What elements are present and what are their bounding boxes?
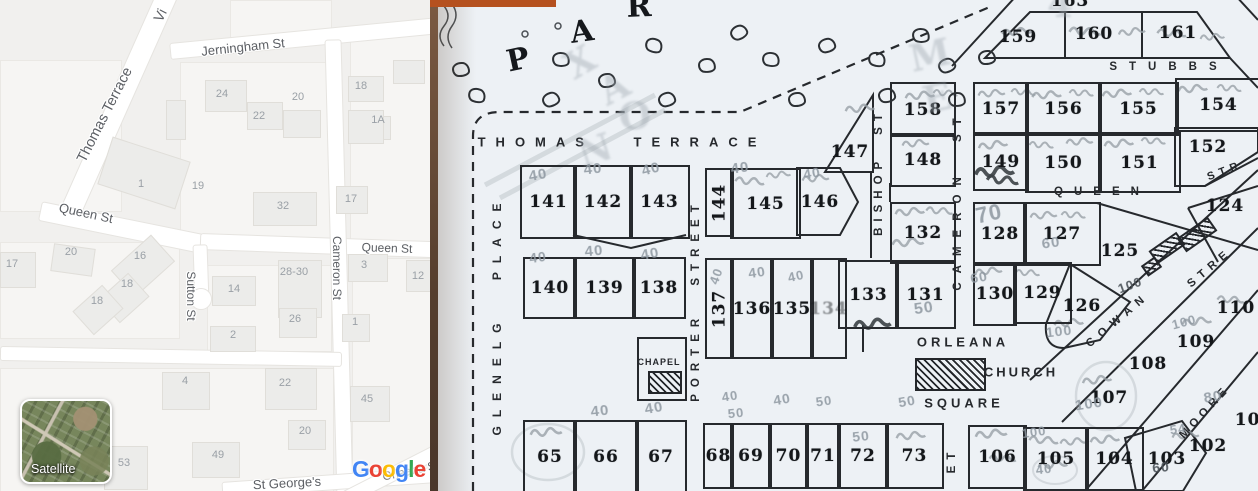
lot-number-108: 108 bbox=[1129, 354, 1168, 374]
lot-145: 145 bbox=[730, 168, 801, 239]
lot-number: 140 bbox=[531, 278, 570, 298]
pencil-annotation: 40 bbox=[643, 398, 664, 418]
scan-edge-strip bbox=[430, 0, 438, 491]
lot-number: 138 bbox=[640, 278, 679, 298]
lot-number: 154 bbox=[1199, 95, 1238, 115]
lot-number: 129 bbox=[1023, 283, 1062, 303]
lot-number: 150 bbox=[1044, 153, 1083, 173]
pencil-annotation: 80 bbox=[1202, 387, 1223, 407]
pencil-annotation: 70 bbox=[973, 199, 1004, 230]
house-number: 45 bbox=[361, 393, 373, 405]
lot-number: 142 bbox=[584, 192, 623, 212]
lot-66: 66 bbox=[573, 420, 639, 491]
park-letter: R bbox=[626, 0, 652, 25]
lot-156: 156 bbox=[1025, 82, 1102, 136]
lot-133: 133 bbox=[838, 260, 899, 329]
house-number: 1 bbox=[138, 178, 144, 190]
tree-icon bbox=[452, 62, 470, 77]
house-number: 18 bbox=[91, 295, 103, 307]
building-footprint bbox=[283, 110, 321, 138]
lot-number: 69 bbox=[738, 446, 764, 466]
lot-number: 73 bbox=[902, 446, 928, 466]
street-label: Cameron St bbox=[330, 236, 344, 300]
pencil-annotation: 40 bbox=[527, 165, 548, 185]
house-number: 26 bbox=[289, 313, 301, 325]
building-footprint bbox=[166, 100, 186, 140]
house-number: 1 bbox=[352, 316, 358, 328]
house-number: 14 bbox=[228, 283, 240, 295]
lot-number: 137 bbox=[710, 289, 730, 328]
house-number: 20 bbox=[292, 91, 304, 103]
google-logo-letter: G bbox=[352, 456, 369, 482]
lot-151: 151 bbox=[1098, 132, 1181, 193]
house-number: 49 bbox=[212, 449, 224, 461]
google-logo-letter: o bbox=[369, 456, 382, 482]
house-number: 17 bbox=[345, 193, 357, 205]
lot-number: 106 bbox=[978, 447, 1017, 467]
pencil-annotation: 60 bbox=[1151, 458, 1170, 476]
pencil-annotation: 40 bbox=[747, 263, 767, 281]
lot-number: 67 bbox=[648, 447, 674, 467]
lot-number: 130 bbox=[976, 284, 1015, 304]
house-number: 1A bbox=[371, 114, 384, 126]
lot-number-147: 147 bbox=[831, 142, 870, 162]
lot-number: 151 bbox=[1120, 153, 1159, 173]
lot-67: 67 bbox=[635, 420, 687, 491]
building-footprint bbox=[393, 60, 425, 84]
pencil-annotation: 60 bbox=[1041, 233, 1062, 252]
screenshot-root: 242220181A119321717201618181428-30312226… bbox=[0, 0, 1258, 491]
google-logo-letter: e bbox=[413, 456, 425, 482]
lot-number: 72 bbox=[850, 446, 876, 466]
hatched-building bbox=[648, 371, 682, 394]
lot-127: 127 bbox=[1023, 202, 1101, 266]
lot-number-152: 152 bbox=[1189, 137, 1228, 157]
pencil-annotation: 54 bbox=[1169, 420, 1187, 437]
pencil-annotation: 40 bbox=[772, 390, 792, 409]
lot-number: 132 bbox=[904, 223, 943, 243]
lot-number: 145 bbox=[746, 194, 785, 214]
lot-106: 106 bbox=[968, 425, 1027, 489]
house-number: 53 bbox=[118, 457, 130, 469]
lot-number-160: 160 bbox=[1075, 24, 1114, 44]
lot-number: 143 bbox=[640, 192, 679, 212]
house-number: 18 bbox=[121, 278, 133, 290]
pencil-annotation: 40 bbox=[730, 158, 751, 177]
lot-number: 68 bbox=[706, 446, 732, 466]
house-number: 19 bbox=[192, 180, 204, 192]
house-number: 22 bbox=[253, 110, 265, 122]
google-logo-letter: o bbox=[382, 456, 395, 482]
lot-138: 138 bbox=[632, 257, 686, 319]
lot-149: 149 bbox=[973, 132, 1029, 191]
plat-street-label: QUEEN bbox=[1054, 186, 1150, 198]
stamp-letter: O bbox=[617, 92, 654, 139]
house-number: 2 bbox=[230, 329, 236, 341]
satellite-toggle-label: Satellite bbox=[31, 462, 75, 476]
pencil-annotation: 50 bbox=[851, 427, 870, 445]
lot-number-102: 102 bbox=[1189, 436, 1228, 456]
plat-street-label: STUBBS bbox=[1109, 61, 1228, 73]
lot-71: 71 bbox=[805, 423, 841, 489]
house-number: 22 bbox=[279, 377, 291, 389]
lot-number: 155 bbox=[1119, 99, 1158, 119]
lot-number-146: 146 bbox=[801, 192, 840, 212]
lot-150: 150 bbox=[1025, 132, 1102, 193]
scan-orange-bar bbox=[430, 0, 556, 7]
plat-street-label: GLENELG PLACE bbox=[490, 194, 504, 435]
plat-street-label: BISHOP ST bbox=[873, 108, 885, 236]
pencil-annotation: 40 bbox=[1035, 461, 1053, 478]
house-number: 18 bbox=[355, 80, 367, 92]
building-footprint bbox=[348, 254, 388, 282]
lot-104: 104 bbox=[1085, 427, 1144, 491]
lot-73: 73 bbox=[885, 423, 944, 489]
hatched-building bbox=[915, 358, 986, 391]
lot-number: 134 bbox=[809, 299, 848, 319]
house-number: 4 bbox=[182, 375, 188, 387]
lot-number-159: 159 bbox=[999, 27, 1038, 47]
lot-number: 135 bbox=[773, 299, 812, 319]
house-number: 24 bbox=[216, 88, 228, 100]
google-logo-letter: g bbox=[395, 456, 408, 482]
lot-number: 70 bbox=[776, 446, 802, 466]
lot-65: 65 bbox=[523, 420, 577, 491]
lot-number: 156 bbox=[1044, 99, 1083, 119]
historic-plat-scan[interactable]: 1411421431441451581481571561551541491501… bbox=[430, 0, 1258, 491]
lot-number: 157 bbox=[982, 99, 1021, 119]
lot-number: 149 bbox=[982, 152, 1021, 172]
stamp-letter: M bbox=[905, 29, 954, 81]
pencil-annotation: 40 bbox=[584, 242, 604, 261]
plat-street-label: ET bbox=[946, 447, 958, 474]
lot-number-124: 124 bbox=[1206, 196, 1245, 216]
lot-70: 70 bbox=[768, 423, 809, 489]
house-number: 3 bbox=[361, 259, 367, 271]
lot-143: 143 bbox=[629, 165, 690, 239]
lot-131: 131 bbox=[895, 260, 956, 329]
satellite-toggle-button[interactable]: Satellite bbox=[20, 399, 112, 484]
plat-street-label: SQUARE bbox=[924, 396, 1004, 411]
lot-number: 148 bbox=[904, 150, 943, 170]
lot-134: 134 bbox=[810, 258, 847, 359]
lot-number: 141 bbox=[529, 192, 568, 212]
plat-street-label: ORLEANA bbox=[917, 335, 1009, 350]
lot-number-161: 161 bbox=[1159, 23, 1198, 43]
lot-155: 155 bbox=[1098, 82, 1179, 136]
lot-number-109: 109 bbox=[1177, 332, 1216, 352]
lot-number: 104 bbox=[1095, 449, 1134, 469]
lot-number-101: 101 bbox=[1235, 410, 1258, 430]
pencil-annotation: 40 bbox=[590, 402, 610, 421]
lot-number-125: 125 bbox=[1101, 241, 1140, 261]
pencil-annotation: 60 bbox=[969, 268, 989, 287]
house-number: 20 bbox=[299, 425, 311, 437]
pencil-annotation: 50 bbox=[727, 405, 745, 422]
house-number: 28-30 bbox=[280, 266, 308, 278]
lot-number: 133 bbox=[849, 285, 888, 305]
house-number: 17 bbox=[6, 258, 18, 270]
house-number: 12 bbox=[412, 270, 424, 282]
pencil-annotation: 40 bbox=[639, 244, 660, 264]
lot-69: 69 bbox=[730, 423, 772, 489]
stamp-letter: 4 bbox=[1047, 0, 1073, 26]
plat-street-label: CHURCH bbox=[984, 365, 1058, 380]
pencil-annotation: 50 bbox=[815, 392, 833, 409]
pencil-annotation: 100 bbox=[1045, 322, 1073, 341]
lot-number: 139 bbox=[585, 278, 624, 298]
house-number: 32 bbox=[277, 200, 289, 212]
lot-number: 136 bbox=[733, 299, 772, 319]
pencil-annotation: 50 bbox=[897, 392, 917, 411]
street-label: Sutton St bbox=[184, 271, 198, 320]
pencil-squiggle bbox=[845, 104, 874, 113]
pencil-annotation: 40 bbox=[583, 160, 603, 179]
building-footprint bbox=[265, 368, 317, 410]
lot-number: 66 bbox=[593, 447, 619, 467]
google-map-canvas[interactable]: 242220181A119321717201618181428-30312226… bbox=[0, 0, 430, 491]
pencil-annotation: 40 bbox=[721, 387, 739, 404]
lot-number: 65 bbox=[537, 447, 563, 467]
lot-number: 71 bbox=[810, 446, 836, 466]
lot-157: 157 bbox=[973, 82, 1029, 136]
street-label: St George's bbox=[253, 474, 322, 491]
lot-148: 148 bbox=[890, 133, 956, 187]
street-label: Queen St bbox=[361, 240, 412, 256]
lot-140: 140 bbox=[523, 257, 577, 319]
house-number: 16 bbox=[134, 250, 146, 262]
google-logo[interactable]: Google bbox=[352, 456, 425, 483]
tree-icon bbox=[978, 50, 996, 65]
pencil-annotation: 50 bbox=[913, 299, 935, 320]
lot-number: 144 bbox=[710, 183, 730, 222]
lot-number-110: 110 bbox=[1217, 298, 1256, 318]
lot-139: 139 bbox=[573, 257, 636, 319]
pencil-annotation: 40 bbox=[528, 248, 548, 266]
plat-street-label: PORTER STREET bbox=[690, 198, 702, 401]
lot-132: 132 bbox=[890, 202, 956, 264]
plat-street-label: CHAPEL bbox=[637, 357, 680, 367]
lot-154: 154 bbox=[1175, 78, 1258, 132]
house-number: 20 bbox=[65, 246, 77, 258]
tree-icon bbox=[788, 92, 806, 107]
pencil-annotation: 40 bbox=[802, 164, 822, 183]
lot-number-126: 126 bbox=[1063, 296, 1102, 316]
plat-street-label: CAMERON ST bbox=[952, 109, 964, 290]
